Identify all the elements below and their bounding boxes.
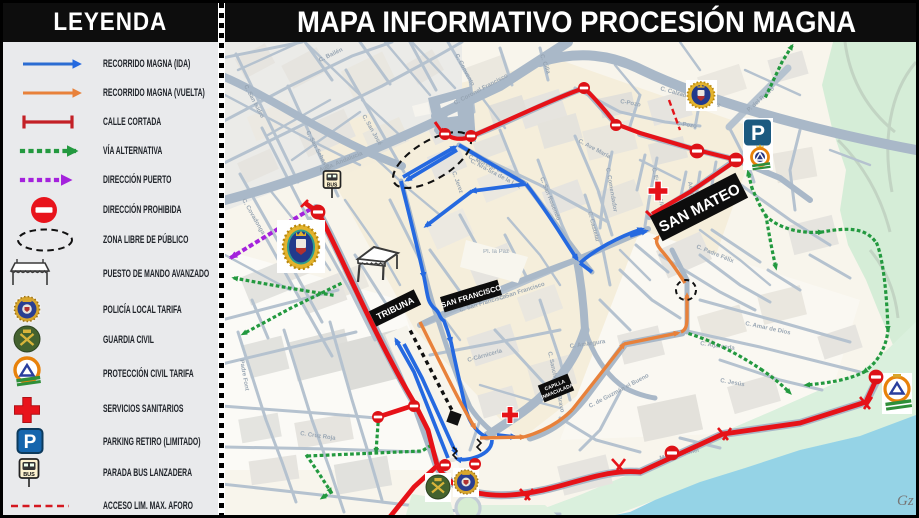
svg-text:BUS: BUS <box>23 472 35 478</box>
svg-text:Pl. la Paz: Pl. la Paz <box>483 249 509 255</box>
svg-text:P: P <box>24 432 37 453</box>
svg-text:P: P <box>751 122 765 145</box>
svg-text:BUS: BUS <box>327 183 338 189</box>
svg-text:Gz: Gz <box>897 493 914 509</box>
